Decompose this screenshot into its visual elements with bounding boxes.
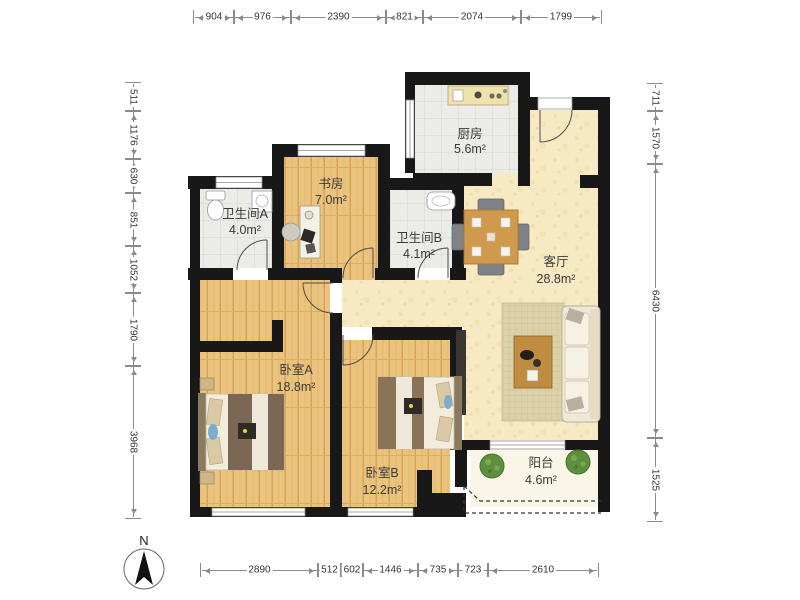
dim-top-904: 904 bbox=[193, 10, 235, 24]
dim-bottom-2610: 2610 bbox=[487, 563, 599, 577]
kitchen-opening-floor bbox=[492, 173, 518, 186]
dim-top-976: 976 bbox=[233, 10, 292, 24]
wall-bedroom-a-partition-v bbox=[272, 320, 283, 352]
wall-hall-top-3 bbox=[375, 268, 415, 280]
dim-left-3968: 3968 bbox=[125, 365, 141, 519]
window-bathroom-a bbox=[216, 177, 262, 188]
dim-bottom-1446: 1446 bbox=[362, 563, 419, 577]
dim-top-821: 821 bbox=[385, 10, 424, 24]
dim-right-1570: 1570 bbox=[647, 110, 663, 165]
room-label-study: 书房 bbox=[318, 176, 343, 191]
dim-left-851: 851 bbox=[125, 192, 141, 247]
dim-bottom-2890: 2890 bbox=[200, 563, 319, 577]
room-area-study: 7.0m² bbox=[315, 193, 347, 207]
wall-kitchen-top bbox=[405, 72, 530, 85]
sofa bbox=[562, 306, 600, 422]
window-balcony-slider bbox=[490, 441, 565, 449]
dim-top-1799: 1799 bbox=[520, 10, 602, 24]
room-area-bedroom-b: 12.2m² bbox=[363, 483, 402, 497]
room-label-bedroom-b: 卧室B bbox=[365, 465, 398, 480]
room-label-bathroom-a: 卫生间A bbox=[222, 207, 269, 221]
wall-entry-left bbox=[530, 97, 538, 110]
bed-b bbox=[378, 376, 462, 450]
dim-left-1052: 1052 bbox=[125, 245, 141, 294]
wall-bedroom-divider bbox=[330, 313, 342, 507]
wall-hall-top-4 bbox=[450, 268, 466, 280]
wall-bedroom-b-notch-h bbox=[430, 493, 466, 517]
room-area-kitchen: 5.6m² bbox=[454, 142, 486, 156]
wall-balcony-right-top bbox=[565, 440, 610, 450]
room-area-bathroom-b: 4.1m² bbox=[403, 247, 435, 261]
room-label-living: 客厅 bbox=[543, 254, 568, 269]
wall-divider-upper bbox=[330, 268, 342, 283]
room-label-bathroom-b: 卫生间B bbox=[396, 231, 442, 245]
dim-left-1790: 1790 bbox=[125, 292, 141, 367]
room-area-living: 28.8m² bbox=[537, 272, 576, 286]
floor-plan-drawing: 厨房 5.6m² 卫生间A 4.0m² 书房 7.0m² 卫生间B 4.1m² … bbox=[0, 0, 800, 600]
wall-kitchen-right bbox=[518, 85, 530, 186]
wall-hall-top-2 bbox=[268, 268, 340, 280]
wall-bedroom-a-partition-h bbox=[190, 341, 283, 352]
room-label-balcony: 阳台 bbox=[528, 455, 553, 470]
wall-hall-top-1 bbox=[188, 268, 233, 280]
dim-right-6430: 6430 bbox=[647, 163, 663, 439]
plant-left bbox=[480, 454, 504, 478]
coffee-table bbox=[514, 336, 552, 388]
window-kitchen bbox=[406, 100, 414, 158]
wall-bedroom-b-notch-v bbox=[417, 470, 432, 517]
bed-a bbox=[198, 378, 284, 484]
wall-right-stub bbox=[580, 175, 598, 188]
dim-bottom-735: 735 bbox=[417, 563, 459, 577]
compass-needle-icon bbox=[135, 551, 153, 585]
dim-left-630: 630 bbox=[125, 158, 141, 194]
dim-left-1176: 1176 bbox=[125, 110, 141, 160]
compass: N bbox=[124, 533, 164, 589]
compass-north-label: N bbox=[139, 533, 148, 548]
wall-bathroom-a-right bbox=[272, 144, 284, 280]
hallway-floor bbox=[342, 280, 464, 327]
plant-right bbox=[566, 450, 590, 474]
room-area-bathroom-a: 4.0m² bbox=[229, 223, 261, 237]
wall-bedroom-b-top bbox=[372, 327, 462, 340]
dim-bottom-602: 602 bbox=[340, 563, 364, 577]
room-area-bedroom-a: 18.8m² bbox=[277, 380, 316, 394]
room-label-kitchen: 厨房 bbox=[457, 126, 482, 141]
dim-top-2390: 2390 bbox=[290, 10, 387, 24]
window-bedroom-b bbox=[348, 508, 413, 516]
dim-bottom-723: 723 bbox=[457, 563, 489, 577]
floor-plan-page: 厨房 5.6m² 卫生间A 4.0m² 书房 7.0m² 卫生间B 4.1m² … bbox=[0, 0, 800, 600]
kitchen-counter bbox=[448, 86, 508, 105]
wall-bathroom-b-top bbox=[386, 178, 452, 190]
dim-right-1525: 1525 bbox=[647, 437, 663, 522]
room-label-bedroom-a: 卧室A bbox=[279, 362, 313, 377]
study-floor bbox=[283, 157, 378, 280]
wall-study-right bbox=[378, 144, 390, 280]
washbasin bbox=[427, 192, 455, 210]
window-study bbox=[298, 145, 365, 156]
dim-top-2074: 2074 bbox=[422, 10, 522, 24]
room-area-balcony: 4.6m² bbox=[525, 473, 557, 487]
dim-bottom-512: 512 bbox=[317, 563, 342, 577]
dim-left-511: 511 bbox=[125, 82, 141, 112]
dim-right-711: 711 bbox=[647, 83, 663, 112]
window-bedroom-a bbox=[212, 508, 305, 516]
